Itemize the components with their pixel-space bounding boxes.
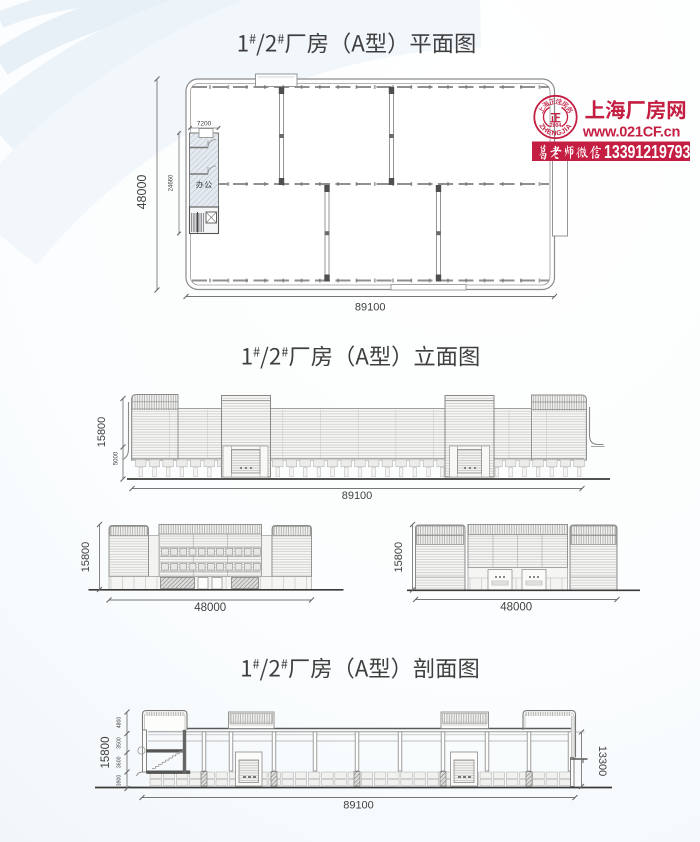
svg-text:15800: 15800: [96, 417, 108, 448]
svg-text:13300: 13300: [596, 746, 608, 777]
svg-text:15800: 15800: [393, 542, 405, 573]
svg-text:15800: 15800: [80, 542, 92, 573]
svg-text:3500: 3500: [117, 737, 123, 749]
svg-text:3600: 3600: [117, 756, 123, 768]
svg-text:89100: 89100: [355, 302, 386, 314]
svg-text:2004: 2004: [550, 123, 562, 129]
svg-text:5000: 5000: [114, 451, 120, 465]
svg-text:7200: 7200: [197, 121, 212, 128]
svg-text:15800: 15800: [100, 737, 112, 769]
svg-text:4800: 4800: [117, 717, 123, 729]
svg-text:89100: 89100: [343, 800, 374, 812]
svg-text:48000: 48000: [500, 602, 532, 614]
svg-text:24660: 24660: [169, 174, 175, 191]
svg-text:www.021CF.cn: www.021CF.cn: [582, 125, 681, 141]
svg-text:13391219793: 13391219793: [604, 142, 690, 162]
svg-text:3900: 3900: [117, 775, 123, 787]
svg-text:89100: 89100: [342, 490, 373, 502]
svg-text:48000: 48000: [194, 602, 226, 614]
svg-text:48000: 48000: [135, 175, 149, 210]
